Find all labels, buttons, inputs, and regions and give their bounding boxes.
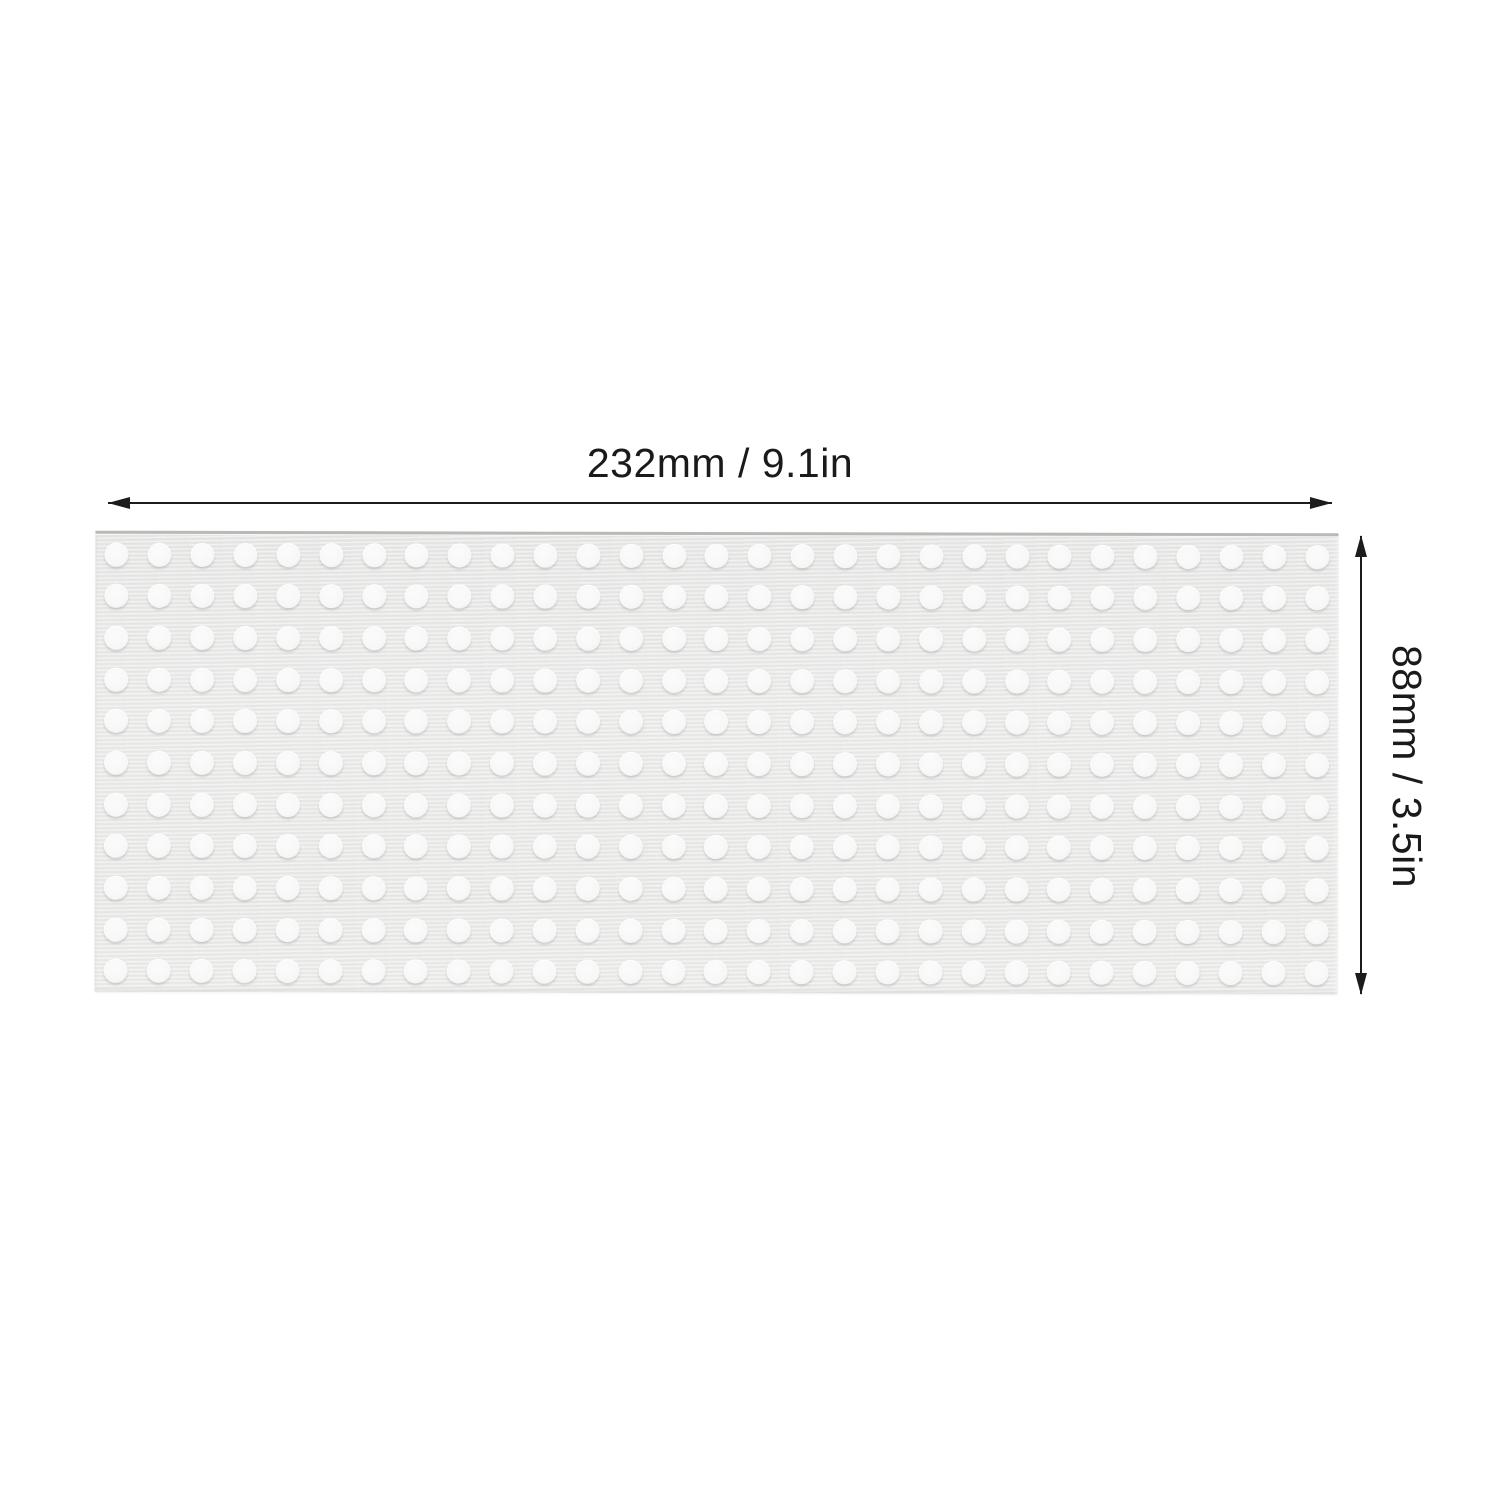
- stud-dot: [705, 627, 729, 651]
- stud-dot: [448, 627, 472, 651]
- stud-cell: [781, 702, 824, 744]
- stud-dot: [533, 543, 557, 567]
- stud-dot: [1261, 836, 1285, 860]
- stud-cell: [438, 618, 481, 660]
- stud-cell: [353, 534, 396, 576]
- stud-cell: [567, 701, 610, 743]
- stud-dot: [1133, 919, 1157, 943]
- stud-cell: [566, 826, 609, 868]
- stud-cell: [695, 743, 738, 785]
- arrowhead-down-icon: [1355, 973, 1367, 995]
- stud-dot: [319, 543, 343, 567]
- stud-cell: [867, 619, 910, 661]
- stud-cell: [866, 743, 909, 785]
- stud-cell: [652, 951, 695, 993]
- stud-cell: [695, 535, 738, 577]
- stud-cell: [1296, 536, 1339, 578]
- stud-dot: [148, 584, 172, 608]
- stud-dot: [1261, 961, 1285, 985]
- stud-cell: [909, 827, 952, 869]
- stud-cell: [352, 659, 395, 701]
- stud-cell: [1038, 744, 1081, 786]
- stud-dot: [919, 544, 943, 568]
- stud-cell: [1252, 661, 1295, 703]
- stud-dot: [876, 711, 900, 735]
- stud-cell: [566, 784, 609, 826]
- stud-dot: [876, 919, 900, 943]
- stud-dot: [319, 710, 343, 734]
- stud-cell: [738, 910, 781, 952]
- stud-dot: [448, 585, 472, 609]
- stud-cell: [395, 867, 438, 909]
- stud-dot: [705, 585, 729, 609]
- stud-dot: [447, 668, 471, 692]
- stud-cell: [352, 951, 395, 993]
- stud-dot: [918, 961, 942, 985]
- stud-cell: [224, 534, 267, 576]
- stud-cell: [867, 660, 910, 702]
- stud-dot: [275, 918, 299, 942]
- stud-cell: [524, 618, 567, 660]
- stud-dot: [705, 710, 729, 734]
- stud-dot: [661, 835, 685, 859]
- stud-dot: [1218, 961, 1242, 985]
- stud-dot: [1133, 586, 1157, 610]
- stud-dot: [233, 626, 257, 650]
- stud-dot: [147, 834, 171, 858]
- stud-dot: [1176, 670, 1200, 694]
- stud-dot: [790, 960, 814, 984]
- stud-cell: [867, 577, 910, 619]
- stud-dot: [190, 793, 214, 817]
- stud-cell: [481, 784, 524, 826]
- stud-dot: [747, 919, 771, 943]
- stud-dot: [147, 709, 171, 733]
- stud-cell: [652, 868, 695, 910]
- stud-cell: [652, 660, 695, 702]
- stud-cell: [1038, 619, 1081, 661]
- stud-cell: [310, 534, 353, 576]
- stud-cell: [780, 868, 823, 910]
- stud-dot: [1090, 836, 1114, 860]
- stud-cell: [824, 743, 867, 785]
- stud-dot: [576, 752, 600, 776]
- stud-cell: [352, 826, 395, 868]
- stud-cell: [609, 951, 652, 993]
- product-dimension-image: 232mm / 9.1in 88mm / 3.5in: [0, 0, 1500, 1500]
- stud-cell: [952, 910, 995, 952]
- stud-dot: [1004, 961, 1028, 985]
- stud-cell: [480, 868, 523, 910]
- stud-dot: [1004, 919, 1028, 943]
- stud-dot: [1262, 711, 1286, 735]
- stud-dot: [876, 627, 900, 651]
- stud-dot: [148, 543, 172, 567]
- stud-dot: [961, 836, 985, 860]
- stud-cell: [523, 868, 566, 910]
- stud-cell: [695, 826, 738, 868]
- stud-dot: [1048, 628, 1072, 652]
- stud-cell: [866, 827, 909, 869]
- stud-dot: [490, 918, 514, 942]
- stud-cell: [1124, 577, 1167, 619]
- stud-cell: [1166, 952, 1209, 994]
- stud-dot: [319, 751, 343, 775]
- stud-cell: [310, 617, 353, 659]
- stud-cell: [1124, 702, 1167, 744]
- stud-cell: [1166, 827, 1209, 869]
- stud-dot: [576, 918, 600, 942]
- stud-dot: [1004, 877, 1028, 901]
- stud-dot: [491, 543, 515, 567]
- stud-dot: [833, 586, 857, 610]
- stud-cell: [910, 535, 953, 577]
- stud-cell: [652, 910, 695, 952]
- stud-dot: [1262, 795, 1286, 819]
- stud-dot: [1176, 753, 1200, 777]
- stud-cell: [310, 576, 353, 618]
- stud-cell: [395, 742, 438, 784]
- stud-dot: [1304, 961, 1328, 985]
- stud-cell: [1209, 869, 1252, 911]
- stud-dot: [361, 793, 385, 817]
- stud-cell: [266, 826, 309, 868]
- stud-cell: [95, 742, 138, 784]
- stud-dot: [961, 961, 985, 985]
- stud-dot: [704, 794, 728, 818]
- stud-cell: [480, 909, 523, 951]
- stud-dot: [276, 709, 300, 733]
- stud-cell: [1252, 744, 1295, 786]
- stud-cell: [309, 784, 352, 826]
- stud-cell: [1038, 785, 1081, 827]
- stud-dot: [705, 544, 729, 568]
- stud-dot: [104, 959, 128, 983]
- stud-cell: [866, 868, 909, 910]
- stud-cell: [524, 576, 567, 618]
- stud-cell: [481, 659, 524, 701]
- stud-dot: [833, 544, 857, 568]
- stud-dot: [961, 919, 985, 943]
- stud-dot: [361, 876, 385, 900]
- width-dimension-label: 232mm / 9.1in: [108, 437, 1332, 489]
- stud-dot: [1305, 628, 1329, 652]
- stud-dot: [1047, 711, 1071, 735]
- stud-cell: [1038, 869, 1081, 911]
- stud-dot: [1090, 670, 1114, 694]
- stud-cell: [952, 827, 995, 869]
- stud-cell: [995, 952, 1038, 994]
- stud-dot: [1176, 545, 1200, 569]
- stud-dot: [704, 919, 728, 943]
- stud-dot: [190, 834, 214, 858]
- stud-cell: [352, 784, 395, 826]
- stud-cell: [609, 660, 652, 702]
- stud-cell: [266, 950, 309, 992]
- arrowhead-right-icon: [1310, 497, 1332, 509]
- stud-dot: [1005, 669, 1029, 693]
- stud-cell: [137, 950, 180, 992]
- stud-dot: [490, 585, 514, 609]
- stud-cell: [952, 702, 995, 744]
- stud-dot: [618, 960, 642, 984]
- stud-dot: [147, 792, 171, 816]
- stud-dot: [533, 877, 557, 901]
- stud-cell: [1209, 744, 1252, 786]
- stud-dot: [662, 710, 686, 734]
- stud-cell: [1167, 702, 1210, 744]
- stud-dot: [1048, 545, 1072, 569]
- stud-cell: [395, 534, 438, 576]
- stud-dot: [404, 960, 428, 984]
- stud-cell: [481, 743, 524, 785]
- stud-dot: [876, 544, 900, 568]
- stud-cell: [309, 826, 352, 868]
- stud-dot: [447, 793, 471, 817]
- stud-cell: [1124, 786, 1167, 828]
- stud-cell: [95, 617, 138, 659]
- stud-cell: [652, 701, 695, 743]
- stud-cell: [224, 700, 267, 742]
- stud-cell: [953, 535, 996, 577]
- stud-cell: [395, 826, 438, 868]
- stud-cell: [953, 577, 996, 619]
- stud-dot: [918, 919, 942, 943]
- stud-cell: [995, 869, 1038, 911]
- stud-cell: [1209, 703, 1252, 745]
- stud-dot: [748, 544, 772, 568]
- stud-dot: [404, 876, 428, 900]
- stud-dot: [790, 669, 814, 693]
- stud-cell: [1038, 661, 1081, 703]
- stud-dot: [747, 752, 771, 776]
- stud-cell: [138, 784, 181, 826]
- stud-dot: [1134, 545, 1158, 569]
- stud-dot: [747, 710, 771, 734]
- stud-cell: [1167, 619, 1210, 661]
- stud-dot: [1218, 920, 1242, 944]
- stud-cell: [952, 785, 995, 827]
- stud-dot: [1262, 670, 1286, 694]
- stud-cell: [181, 534, 224, 576]
- stud-cell: [1038, 910, 1081, 952]
- stud-cell: [566, 909, 609, 951]
- stud-dot: [919, 794, 943, 818]
- stud-dot: [533, 752, 557, 776]
- stud-dot: [1133, 836, 1157, 860]
- stud-cell: [781, 535, 824, 577]
- stud-cell: [866, 952, 909, 994]
- stud-dot: [104, 876, 128, 900]
- stud-dot: [1047, 753, 1071, 777]
- stud-dot: [190, 876, 214, 900]
- stud-dot: [276, 793, 300, 817]
- stud-dot: [962, 752, 986, 776]
- stud-cell: [567, 535, 610, 577]
- stud-dot: [1133, 961, 1157, 985]
- stud-cell: [438, 826, 481, 868]
- stud-cell: [824, 702, 867, 744]
- stud-dot: [576, 627, 600, 651]
- stud-cell: [1295, 953, 1338, 995]
- stud-dot: [576, 668, 600, 692]
- stud-cell: [524, 701, 567, 743]
- stud-cell: [695, 785, 738, 827]
- stud-dot: [748, 586, 772, 610]
- stud-cell: [1080, 952, 1123, 994]
- stud-cell: [138, 867, 181, 909]
- stud-dot: [919, 586, 943, 610]
- stud-cell: [481, 826, 524, 868]
- stud-cell: [1210, 578, 1253, 620]
- stud-cell: [181, 576, 224, 618]
- stud-cell: [695, 910, 738, 952]
- stud-dot: [1091, 586, 1115, 610]
- stud-cell: [95, 825, 138, 867]
- stud-cell: [952, 660, 995, 702]
- stud-dot: [876, 752, 900, 776]
- stud-cell: [995, 744, 1038, 786]
- stud-dot: [705, 669, 729, 693]
- stud-dot: [490, 960, 514, 984]
- stud-cell: [567, 576, 610, 618]
- stud-dot: [1219, 836, 1243, 860]
- stud-dot: [104, 834, 128, 858]
- stud-cell: [609, 785, 652, 827]
- stud-cell: [1295, 869, 1338, 911]
- stud-dot: [362, 543, 386, 567]
- stud-cell: [95, 659, 138, 701]
- stud-cell: [995, 660, 1038, 702]
- stud-cell: [738, 535, 781, 577]
- stud-dot: [447, 710, 471, 734]
- stud-cell: [1295, 578, 1338, 620]
- stud-dot: [276, 543, 300, 567]
- stud-cell: [952, 952, 995, 994]
- stud-cell: [610, 576, 653, 618]
- stud-cell: [652, 743, 695, 785]
- stud-dot: [276, 751, 300, 775]
- stud-cell: [352, 618, 395, 660]
- stud-dot: [276, 876, 300, 900]
- stud-cell: [695, 660, 738, 702]
- stud-dot: [833, 752, 857, 776]
- stud-cell: [523, 909, 566, 951]
- stud-grid: [95, 534, 1339, 995]
- stud-dot: [747, 835, 771, 859]
- stud-dot: [147, 959, 171, 983]
- stud-dot: [190, 626, 214, 650]
- stud-dot: [833, 960, 857, 984]
- stud-cell: [352, 576, 395, 618]
- stud-cell: [995, 619, 1038, 661]
- stud-cell: [824, 535, 867, 577]
- stud-cell: [1081, 827, 1124, 869]
- stud-dot: [104, 792, 128, 816]
- stud-dot: [575, 960, 599, 984]
- stud-dot: [319, 585, 343, 609]
- stud-cell: [1295, 786, 1338, 828]
- stud-dot: [1305, 712, 1329, 736]
- stud-cell: [1166, 911, 1209, 953]
- stud-dot: [876, 669, 900, 693]
- stud-dot: [1047, 919, 1071, 943]
- stud-cell: [181, 742, 224, 784]
- stud-dot: [104, 709, 128, 733]
- stud-dot: [790, 794, 814, 818]
- stud-dot: [1047, 961, 1071, 985]
- stud-cell: [695, 701, 738, 743]
- stud-cell: [1167, 661, 1210, 703]
- stud-dot: [619, 793, 643, 817]
- stud-dot: [361, 959, 385, 983]
- stud-dot: [1004, 794, 1028, 818]
- stud-cell: [609, 826, 652, 868]
- stud-cell: [309, 659, 352, 701]
- stud-dot: [833, 836, 857, 860]
- stud-cell: [909, 785, 952, 827]
- stud-cell: [95, 784, 138, 826]
- stud-dot: [276, 626, 300, 650]
- stud-dot: [362, 626, 386, 650]
- stud-dot: [147, 876, 171, 900]
- stud-dot: [1005, 586, 1029, 610]
- stud-dot: [233, 751, 257, 775]
- stud-cell: [652, 826, 695, 868]
- stud-dot: [576, 793, 600, 817]
- stud-dot: [662, 585, 686, 609]
- stud-cell: [437, 951, 480, 993]
- stud-dot: [704, 960, 728, 984]
- stud-dot: [404, 835, 428, 859]
- stud-cell: [1252, 828, 1295, 870]
- stud-cell: [395, 951, 438, 993]
- stud-cell: [138, 617, 181, 659]
- stud-dot: [1305, 670, 1329, 694]
- stud-dot: [791, 586, 815, 610]
- stud-cell: [1295, 911, 1338, 953]
- stud-cell: [909, 952, 952, 994]
- stud-dot: [790, 627, 814, 651]
- stud-cell: [438, 576, 481, 618]
- stud-dot: [233, 668, 257, 692]
- stud-dot: [1048, 669, 1072, 693]
- stud-cell: [1038, 536, 1081, 578]
- stud-cell: [1038, 827, 1081, 869]
- stud-dot: [105, 667, 129, 691]
- stud-cell: [1124, 619, 1167, 661]
- stud-dot: [919, 836, 943, 860]
- stud-dot: [1090, 794, 1114, 818]
- stud-dot: [1133, 628, 1157, 652]
- stud-cell: [567, 660, 610, 702]
- stud-cell: [566, 868, 609, 910]
- stud-cell: [1081, 702, 1124, 744]
- stud-cell: [781, 660, 824, 702]
- stud-dot: [1219, 670, 1243, 694]
- stud-cell: [652, 618, 695, 660]
- stud-cell: [1166, 869, 1209, 911]
- stud-dot: [1090, 919, 1114, 943]
- stud-cell: [738, 826, 781, 868]
- stud-cell: [866, 910, 909, 952]
- stud-cell: [438, 867, 481, 909]
- stud-dot: [919, 711, 943, 735]
- stud-dot: [1304, 836, 1328, 860]
- stud-dot: [919, 752, 943, 776]
- stud-dot: [962, 794, 986, 818]
- stud-dot: [1262, 628, 1286, 652]
